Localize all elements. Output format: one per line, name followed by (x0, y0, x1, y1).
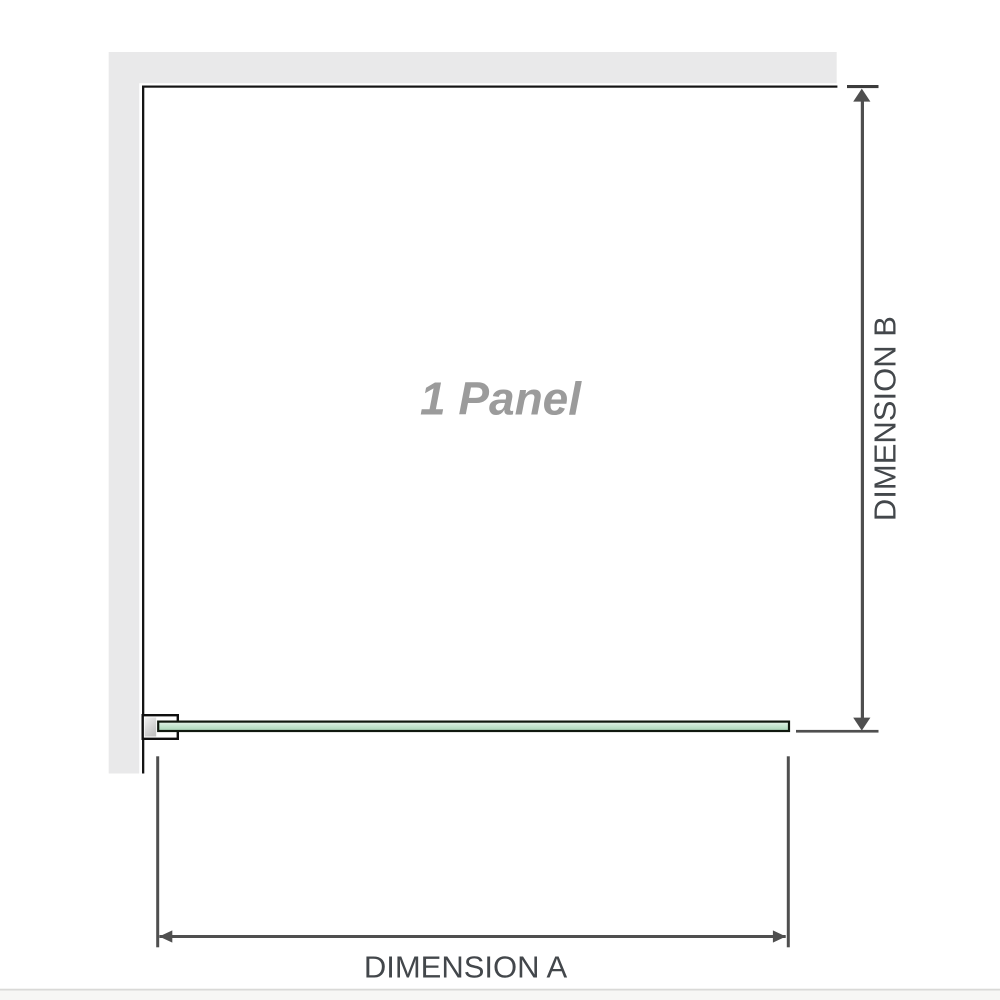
svg-text:DIMENSION A: DIMENSION A (364, 950, 568, 985)
svg-text:1 Panel: 1 Panel (420, 373, 582, 425)
svg-text:DIMENSION B: DIMENSION B (867, 316, 902, 521)
